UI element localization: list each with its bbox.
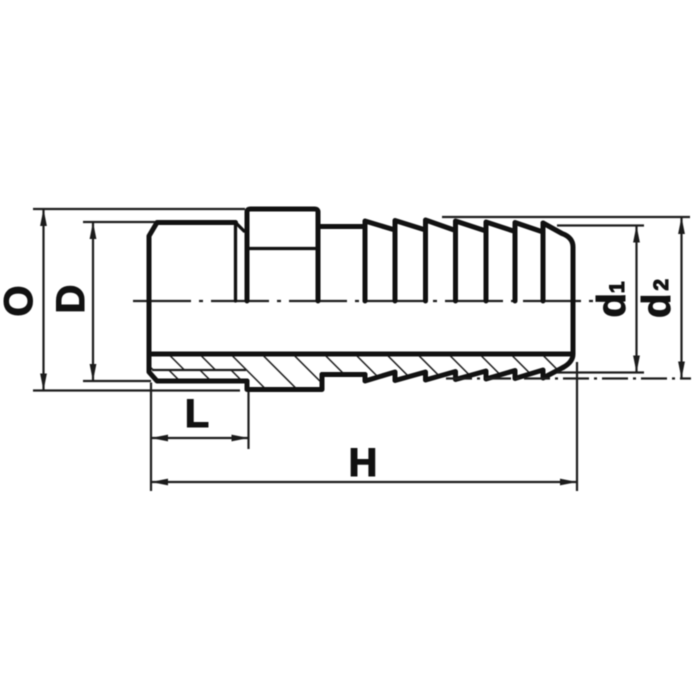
svg-text:D: D: [49, 285, 93, 314]
svg-text:H: H: [349, 441, 378, 485]
svg-text:L: L: [185, 392, 209, 436]
svg-text:O: O: [0, 285, 41, 316]
